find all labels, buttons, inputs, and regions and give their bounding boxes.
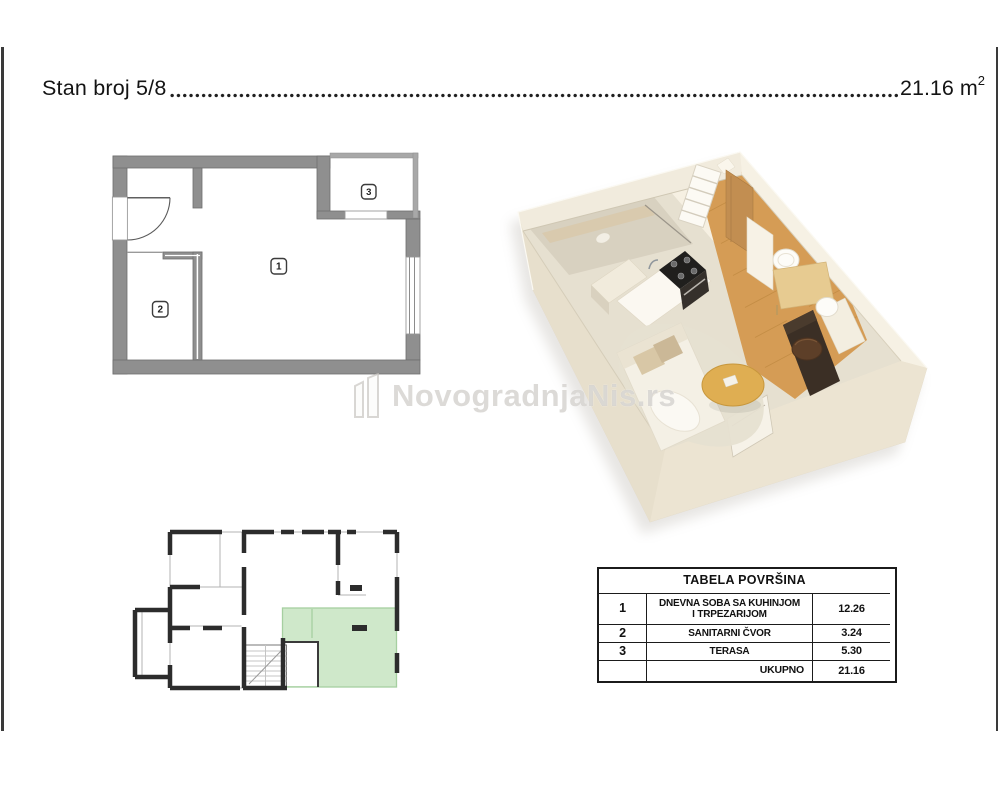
row1-name-line2: I TRPEZARIJOM xyxy=(692,609,767,620)
row3-name: TERASA xyxy=(646,642,812,660)
area-sup: 2 xyxy=(978,73,985,88)
brown-round-chair xyxy=(792,338,822,360)
dotted-leader xyxy=(169,92,899,98)
title-row: Stan broj 5/8 21.16 m2 xyxy=(42,70,985,101)
total-label: UKUPNO xyxy=(646,660,812,681)
right-window xyxy=(406,257,420,334)
building-key-plan xyxy=(130,525,402,697)
room-label-3: 3 xyxy=(362,185,377,200)
floorplan-2d: 1 2 3 xyxy=(105,145,425,380)
area-unit: m xyxy=(960,76,978,100)
row3-value: 5.30 xyxy=(812,642,890,660)
round-coffee-table xyxy=(702,364,764,413)
highlighted-unit xyxy=(283,608,397,687)
total-empty-cell xyxy=(599,660,646,681)
entry-door xyxy=(112,197,170,240)
row1-name: DNEVNA SOBA SA KUHINJOM I TRPEZARIJOM xyxy=(646,593,812,624)
page-left-border xyxy=(1,47,4,731)
area-table-title: TABELA POVRŠINA xyxy=(599,569,890,593)
total-value: 21.16 xyxy=(812,660,890,681)
row1-number: 1 xyxy=(599,593,646,624)
staircase xyxy=(245,645,287,688)
row2-value: 3.24 xyxy=(812,624,890,642)
room-1-number: 1 xyxy=(276,262,282,273)
apartment-area: 21.16 m2 xyxy=(900,70,985,101)
area-table: TABELA POVRŠINA 1 DNEVNA SOBA SA KUHINJO… xyxy=(597,567,897,683)
row3-number: 3 xyxy=(599,642,646,660)
area-value: 21.16 xyxy=(900,76,954,100)
row1-value: 12.26 xyxy=(812,593,890,624)
room-3-number: 3 xyxy=(366,187,371,198)
room-label-2: 2 xyxy=(153,302,169,318)
floorplan-3d-render xyxy=(495,143,937,543)
room-2-number: 2 xyxy=(158,305,164,316)
row2-number: 2 xyxy=(599,624,646,642)
row2-name: SANITARNI ČVOR xyxy=(646,624,812,642)
dining-chair-2 xyxy=(816,298,838,317)
page-right-border xyxy=(996,47,999,731)
floorplan-sheet: Stan broj 5/8 21.16 m2 xyxy=(0,0,1000,793)
room-label-1: 1 xyxy=(271,259,287,275)
apartment-title: Stan broj 5/8 xyxy=(42,75,167,101)
terrace-door-opening xyxy=(345,211,387,219)
inner-walls xyxy=(163,168,202,360)
row1-name-line1: DNEVNA SOBA SA KUHINJOM xyxy=(659,598,800,609)
